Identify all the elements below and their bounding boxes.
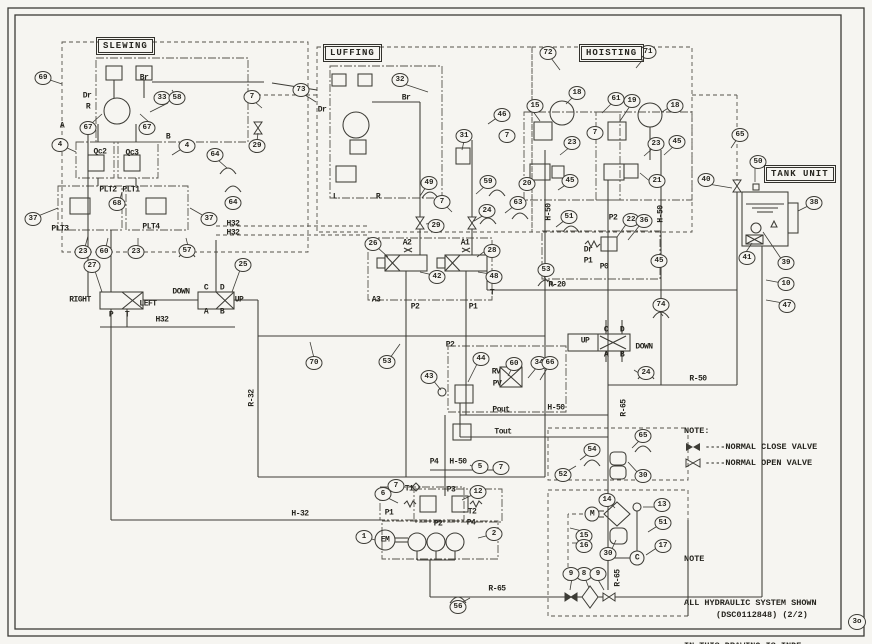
port-label-a: A [204,308,208,317]
port-label-a3: A3 [372,296,381,305]
port-label-r-32: R-32 [248,389,257,406]
port-label-h-50: H-50 [449,458,466,467]
callout-26: 26 [365,237,382,251]
port-label-p1: P1 [469,303,478,312]
callout-45: 45 [669,135,686,149]
callout-9: 9 [590,567,607,581]
port-label-plt2: PLT2 [99,186,116,195]
port-label-r: R [86,103,90,112]
callout-24: 24 [479,204,496,218]
callout-7: 7 [434,195,451,209]
callout-61: 61 [608,92,625,106]
callout-63: 63 [510,196,527,210]
port-label-p2: P2 [411,303,420,312]
port-label-h32: H32 [156,316,169,325]
callout-45: 45 [562,174,579,188]
callout-74: 74 [653,298,670,312]
callout-68: 68 [109,197,126,211]
port-label-plt4: PLT4 [142,223,159,232]
section-title-slewing: SLEWING [98,39,153,53]
callout-23: 23 [648,137,665,151]
callout-24: 24 [638,366,655,380]
hydraulic-schematic-page: 1244567777778991012131415151617181819202… [0,0,872,644]
doc-ref: (DSC0112848) [716,610,777,620]
port-label-p: P [109,311,113,320]
callout-37: 37 [25,212,42,226]
port-label-rv: RV [492,368,501,377]
callout-17: 17 [655,539,672,553]
port-label-d: D [220,284,224,293]
note-title: NOTE [684,552,827,567]
callout-28: 28 [484,244,501,258]
callout-40: 40 [698,173,715,187]
callout-50: 50 [750,155,767,169]
port-label-b: B [166,133,170,142]
port-label-pout: Pout [492,406,509,415]
port-label-p3: P3 [447,486,456,495]
callout-43: 43 [421,370,438,384]
callout-2: 2 [486,527,503,541]
port-label-dr: Dr [83,92,92,101]
callout-18: 18 [667,99,684,113]
callout-44: 44 [473,352,490,366]
port-label-h32: H32 [227,220,240,229]
callout-59: 59 [480,175,497,189]
callout-29: 29 [249,139,266,153]
callout-23: 23 [128,245,145,259]
port-label-plt1: PLT1 [122,186,139,195]
port-label-dr: Dr [318,106,327,115]
valve-legend-note: NOTE: ----NORMAL CLOSE VALVE ----NORMAL … [684,424,817,471]
port-label-left: LEFT [139,300,156,309]
port-label-a1: A1 [461,239,470,248]
callout-56: 56 [450,600,467,614]
callout-20: 20 [519,177,536,191]
callout-7: 7 [493,461,510,475]
port-label-pv: PV [493,380,502,389]
callout-41: 41 [739,251,756,265]
callout-36: 36 [636,214,653,228]
port-label-b: B [620,351,624,360]
callout-51: 51 [655,516,672,530]
port-label-qc2: Qc2 [94,148,107,157]
normal-close-valve-icon [684,442,702,452]
callout-25: 25 [235,258,252,272]
port-label-t1: T1 [405,485,414,494]
callout-7: 7 [499,129,516,143]
callout-65: 65 [635,429,652,443]
callout-47: 47 [779,299,796,313]
port-label-r-20: R-20 [548,281,565,290]
callout-69: 69 [35,71,52,85]
callout-30: 30 [635,469,652,483]
port-label-right: RIGHT [69,296,91,305]
callout-64: 64 [207,148,224,162]
callout-53: 53 [538,263,555,277]
callout-53: 53 [379,355,396,369]
port-label-t: T [490,289,494,298]
callout-52: 52 [555,468,572,482]
callout-13: 13 [654,498,671,512]
port-label-p4: P4 [430,458,439,467]
callout-70: 70 [306,356,323,370]
callout-23: 23 [564,136,581,150]
port-label-p2: P2 [609,214,618,223]
port-label-down: DOWN [635,343,652,352]
callout-46: 46 [494,108,511,122]
port-label-a: A [60,122,64,131]
sheet-number: (2/2) [782,610,808,620]
legend-title: NOTE: [684,424,817,439]
callout-51: 51 [561,210,578,224]
port-label-dr: Dr [584,246,593,255]
callout-30: 30 [600,547,617,561]
port-label-h-50: H-50 [545,203,554,220]
port-label-t: T [125,311,129,320]
callout-60: 60 [506,357,523,371]
port-label-tout: Tout [494,428,511,437]
manufacturing-note: NOTE ALL HYDRAULIC SYSTEM SHOWN IN THIS … [684,523,827,644]
port-label-p2: P2 [446,341,455,350]
callout-15: 15 [527,99,544,113]
callout-38: 38 [806,196,823,210]
section-title-hoisting: HOISTING [581,46,642,60]
port-label-p1: P1 [584,257,593,266]
port-label-r: R [376,193,380,202]
callout-45: 45 [651,254,668,268]
callout-19: 19 [624,94,641,108]
port-label-c: C [635,554,639,563]
port-label-h-32: H-32 [291,510,308,519]
port-label-p1: P1 [385,509,394,518]
port-label-plt3: PLT3 [51,225,68,234]
port-label-c: C [204,284,208,293]
port-label-h32: H32 [227,229,240,238]
callout-67: 67 [139,121,156,135]
callout-29: 29 [428,219,445,233]
callout-21: 21 [649,174,666,188]
callout-64: 64 [225,196,242,210]
callout-4: 4 [179,139,196,153]
callout-57: 57 [179,244,196,258]
port-label-b: B [220,308,224,317]
port-label-m: M [590,510,594,519]
callout-12: 12 [470,485,487,499]
callout-14: 14 [599,493,616,507]
callout-54: 54 [584,443,601,457]
callout-73: 73 [293,83,310,97]
port-label-r-65: R-65 [614,569,623,586]
port-label-r-65: R-65 [620,399,629,416]
callout-60: 60 [96,245,113,259]
port-label-p2: P2 [434,520,443,529]
callout-67: 67 [80,121,97,135]
callout-27: 27 [84,259,101,273]
port-label-p4: P4 [467,519,476,528]
note-line-2: IN THIS DRAWING IS INDE- [684,639,827,644]
callout-32: 32 [392,73,409,87]
port-label-c: C [604,326,608,335]
legend-open-valve-label: ----NORMAL OPEN VALVE [705,456,812,471]
callout-23: 23 [75,245,92,259]
callout-7: 7 [388,479,405,493]
callout-49: 49 [421,176,438,190]
legend-close-valve-label: ----NORMAL CLOSE VALVE [705,440,817,455]
port-label-r-65: R-65 [488,585,505,594]
port-label-h-50: H-50 [657,205,666,222]
port-label-h-50: H-50 [547,404,564,413]
port-label-a: A [604,351,608,360]
legend-row-open-valve: ----NORMAL OPEN VALVE [684,455,817,471]
callout-48: 48 [486,270,503,284]
port-label-t2: T2 [468,508,477,517]
callout-5: 5 [472,460,489,474]
callout-66: 66 [542,356,559,370]
section-title-luffing: LUFFING [325,46,380,60]
callout-31: 31 [456,129,473,143]
page-number-badge: 3o [848,614,866,630]
callout-18: 18 [569,86,586,100]
port-label-up: UP [235,296,244,305]
callout-39: 39 [778,256,795,270]
port-label-up: UP [581,337,590,346]
callout-42: 42 [429,270,446,284]
port-label-a2: A2 [403,239,412,248]
callout-10: 10 [778,277,795,291]
port-label-d: D [620,326,624,335]
callout-58: 58 [169,91,186,105]
port-label-p0: P0 [600,263,609,272]
port-label-br: Br [402,94,411,103]
port-label-r-50: R-50 [689,375,706,384]
callout-9: 9 [563,567,580,581]
callout-1: 1 [356,530,373,544]
port-label-br: Br [140,74,149,83]
normal-open-valve-icon [684,458,702,468]
callout-37: 37 [201,212,218,226]
port-label-qc3: Qc3 [126,149,139,158]
legend-row-close-valve: ----NORMAL CLOSE VALVE [684,439,817,455]
callout-4: 4 [52,138,69,152]
port-label-em: EM [381,536,390,545]
note-line-1: ALL HYDRAULIC SYSTEM SHOWN [684,596,827,611]
callout-16: 16 [576,539,593,553]
callout-72: 72 [540,46,557,60]
callout-65: 65 [732,128,749,142]
section-title-tank-unit: TANK UNIT [766,167,834,181]
port-label-down: DOWN [172,288,189,297]
callout-7: 7 [244,90,261,104]
callout-7: 7 [587,126,604,140]
drawing-reference: (DSC0112848) (2/2) [716,610,808,620]
port-label-l: L [333,193,337,202]
